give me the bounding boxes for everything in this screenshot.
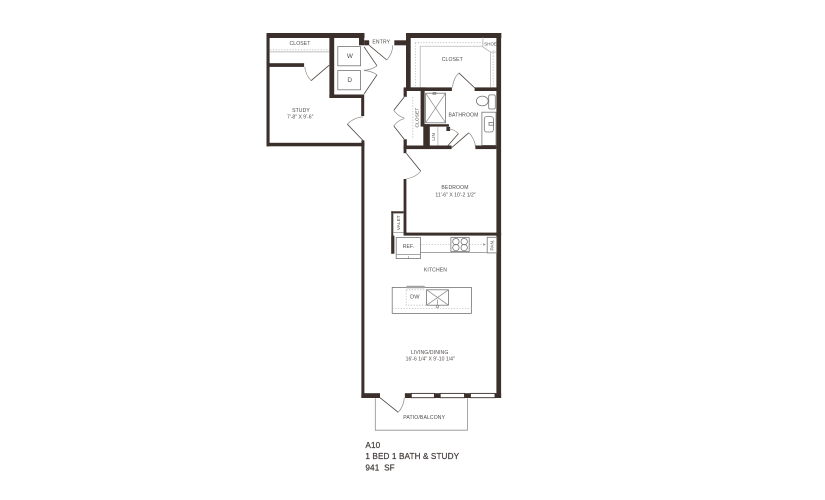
svg-text:1 BED 1 BATH & STUDY: 1 BED 1 BATH & STUDY: [365, 452, 459, 461]
svg-text:SHOE: SHOE: [484, 42, 497, 47]
svg-text:STUDY: STUDY: [292, 108, 310, 114]
svg-text:REF.: REF.: [403, 244, 414, 250]
svg-text:D: D: [347, 77, 352, 84]
svg-text:ENTRY: ENTRY: [372, 39, 390, 45]
svg-text:KITCHEN: KITCHEN: [424, 268, 447, 274]
svg-text:BATHROOM: BATHROOM: [448, 113, 478, 119]
svg-text:11′-6″ X 10′-2 1/2″: 11′-6″ X 10′-2 1/2″: [435, 192, 475, 198]
svg-text:CLOSET: CLOSET: [442, 57, 463, 63]
svg-text:BEDROOM: BEDROOM: [441, 185, 468, 191]
svg-text:LIN: LIN: [431, 133, 436, 141]
svg-text:941 SF: 941 SF: [365, 464, 394, 473]
svg-text:VALET: VALET: [396, 215, 401, 230]
svg-text:A10: A10: [365, 441, 380, 450]
svg-text:DW: DW: [410, 295, 420, 301]
svg-text:PATIO/BALCONY: PATIO/BALCONY: [403, 415, 445, 421]
svg-text:LIVING/DINING: LIVING/DINING: [411, 350, 449, 356]
svg-text:CLOSET: CLOSET: [415, 108, 421, 128]
svg-text:16′-6 1/4″ X 9′-10 1/4″: 16′-6 1/4″ X 9′-10 1/4″: [406, 357, 455, 363]
svg-text:W: W: [347, 53, 354, 60]
svg-text:7′-8″ X 9′-6″: 7′-8″ X 9′-6″: [287, 115, 314, 121]
svg-text:PAN.: PAN.: [490, 240, 495, 251]
svg-text:CLOSET: CLOSET: [289, 41, 310, 47]
